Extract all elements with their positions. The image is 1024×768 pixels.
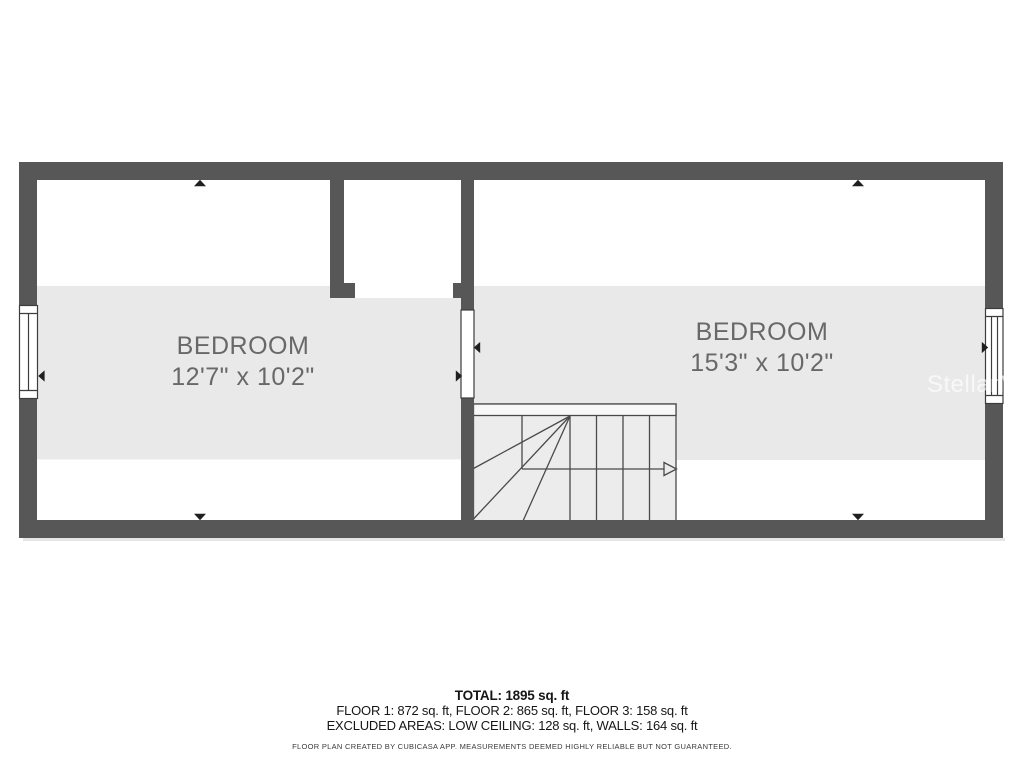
window-icon — [461, 310, 474, 398]
dimension-arrow-icon — [852, 514, 864, 520]
dimension-arrow-icon — [194, 514, 206, 520]
stellar-mls-watermark: StellarMLS — [927, 372, 1024, 398]
wall-shadow — [23, 538, 1005, 541]
staircase — [474, 404, 677, 521]
wall-closet-right-foot — [453, 283, 474, 298]
closet-opening — [355, 283, 453, 298]
staircase-body — [474, 404, 677, 521]
wall-bottom — [19, 520, 1003, 538]
room-label-bedroom-right: BEDROOM — [612, 317, 912, 347]
wall-closet-left — [330, 180, 344, 283]
floor-plan-page: { "page": { "background": "#ffffff", "ty… — [0, 0, 1024, 768]
room-label-bedroom-left: BEDROOM — [93, 331, 393, 361]
dimension-arrow-icon — [194, 180, 206, 186]
room-dimensions-bedroom-right: 15'3" x 10'2" — [612, 348, 912, 378]
footer-floor-breakdown: FLOOR 1: 872 sq. ft, FLOOR 2: 865 sq. ft… — [0, 703, 1024, 718]
room-dimensions-bedroom-left: 12'7" x 10'2" — [93, 362, 393, 392]
footer-disclaimer: FLOOR PLAN CREATED BY CUBICASA APP. MEAS… — [0, 742, 1024, 751]
window-icon — [20, 306, 38, 399]
dimension-arrow-icon — [852, 180, 864, 186]
wall-top — [19, 162, 1003, 180]
wall-closet-left-foot — [330, 283, 355, 298]
footer-excluded-areas: EXCLUDED AREAS: LOW CEILING: 128 sq. ft,… — [0, 718, 1024, 733]
staircase-top-landing — [474, 404, 677, 416]
footer-total-area: TOTAL: 1895 sq. ft — [0, 688, 1024, 703]
